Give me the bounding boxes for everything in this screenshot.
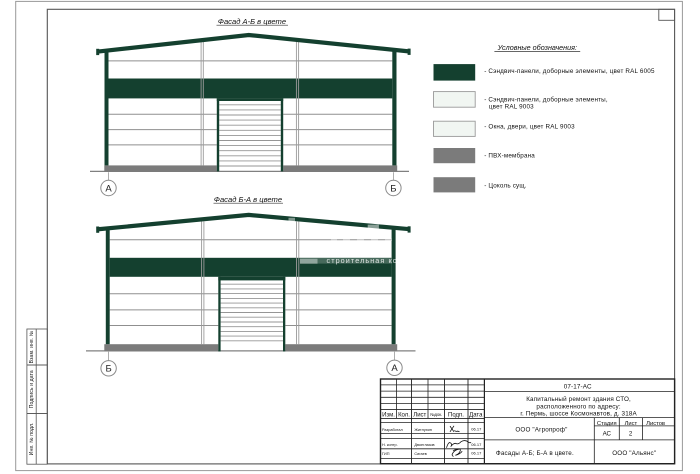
svg-text:Стадия: Стадия (597, 421, 617, 427)
svg-text:06.17: 06.17 (471, 442, 482, 447)
svg-text:строительная ко: строительная ко (327, 256, 398, 265)
svg-text:А: А (105, 183, 112, 194)
svg-text:АС: АС (603, 430, 612, 437)
svg-text:07-17-АС: 07-17-АС (564, 383, 592, 390)
svg-text:Условные обозначения:: Условные обозначения: (497, 43, 577, 52)
svg-text:Лист: Лист (625, 421, 638, 427)
svg-text:Двоеглазов: Двоеглазов (414, 443, 434, 447)
svg-text:Подпись и дата: Подпись и дата (29, 370, 35, 408)
svg-text:2: 2 (629, 430, 633, 437)
svg-text:Листов: Листов (646, 421, 665, 427)
svg-text:Разработал: Разработал (382, 428, 403, 432)
svg-text:Н. контр.: Н. контр. (382, 443, 398, 447)
svg-text:Сигаев: Сигаев (414, 452, 426, 456)
svg-text:ГИП: ГИП (382, 452, 390, 456)
svg-text:Б: Б (105, 364, 111, 375)
svg-text:Фасад Б-А в цвете: Фасад Б-А в цвете (214, 195, 282, 204)
svg-text:Взам. инв. №: Взам. инв. № (29, 331, 35, 364)
svg-text:- Цоколь сущ.: - Цоколь сущ. (484, 182, 527, 189)
svg-text:ООО "Альянс": ООО "Альянс" (612, 450, 656, 457)
svg-text:Капитальный ремонт здания СТО,: Капитальный ремонт здания СТО, (526, 395, 631, 403)
svg-text:Подп.: Подп. (448, 412, 464, 418)
svg-text:№док.: №док. (430, 412, 442, 417)
svg-text:А: А (391, 363, 398, 374)
svg-text:06.17: 06.17 (471, 426, 482, 431)
svg-text:г. Пермь, шоссе Космонавтов, д: г. Пермь, шоссе Космонавтов, д. 318А (520, 411, 637, 418)
svg-text:06.17: 06.17 (471, 450, 482, 455)
svg-text:- Сэндвич-панели, доборные эле: - Сэндвич-панели, доборные элементы, (484, 96, 608, 104)
svg-text:- ПВХ-мембрана: - ПВХ-мембрана (484, 151, 535, 159)
svg-text:расположенного по адресу:: расположенного по адресу: (536, 403, 620, 410)
svg-text:Фасад А-Б в цвете: Фасад А-Б в цвете (218, 17, 286, 26)
svg-text:Б: Б (390, 183, 396, 194)
svg-text:Дата: Дата (469, 412, 483, 418)
svg-text:цвет RAL 9003: цвет RAL 9003 (489, 104, 534, 111)
svg-text:Кол.: Кол. (398, 412, 410, 418)
svg-text:Житлухин: Житлухин (414, 428, 432, 432)
svg-text:- Сэндвич-панели, доборные эле: - Сэндвич-панели, доборные элементы, цве… (484, 67, 655, 75)
svg-text:Инв. № подл.: Инв. № подл. (29, 422, 35, 455)
svg-text:ООО "Агропроф": ООО "Агропроф" (515, 427, 567, 434)
svg-text:Фасады А-Б; Б-А в цвете.: Фасады А-Б; Б-А в цвете. (496, 450, 574, 457)
svg-text:- Окна, двери, цвет RAL 9003: - Окна, двери, цвет RAL 9003 (484, 123, 575, 130)
svg-text:Лист: Лист (413, 412, 426, 418)
svg-text:Изм.: Изм. (382, 412, 395, 418)
